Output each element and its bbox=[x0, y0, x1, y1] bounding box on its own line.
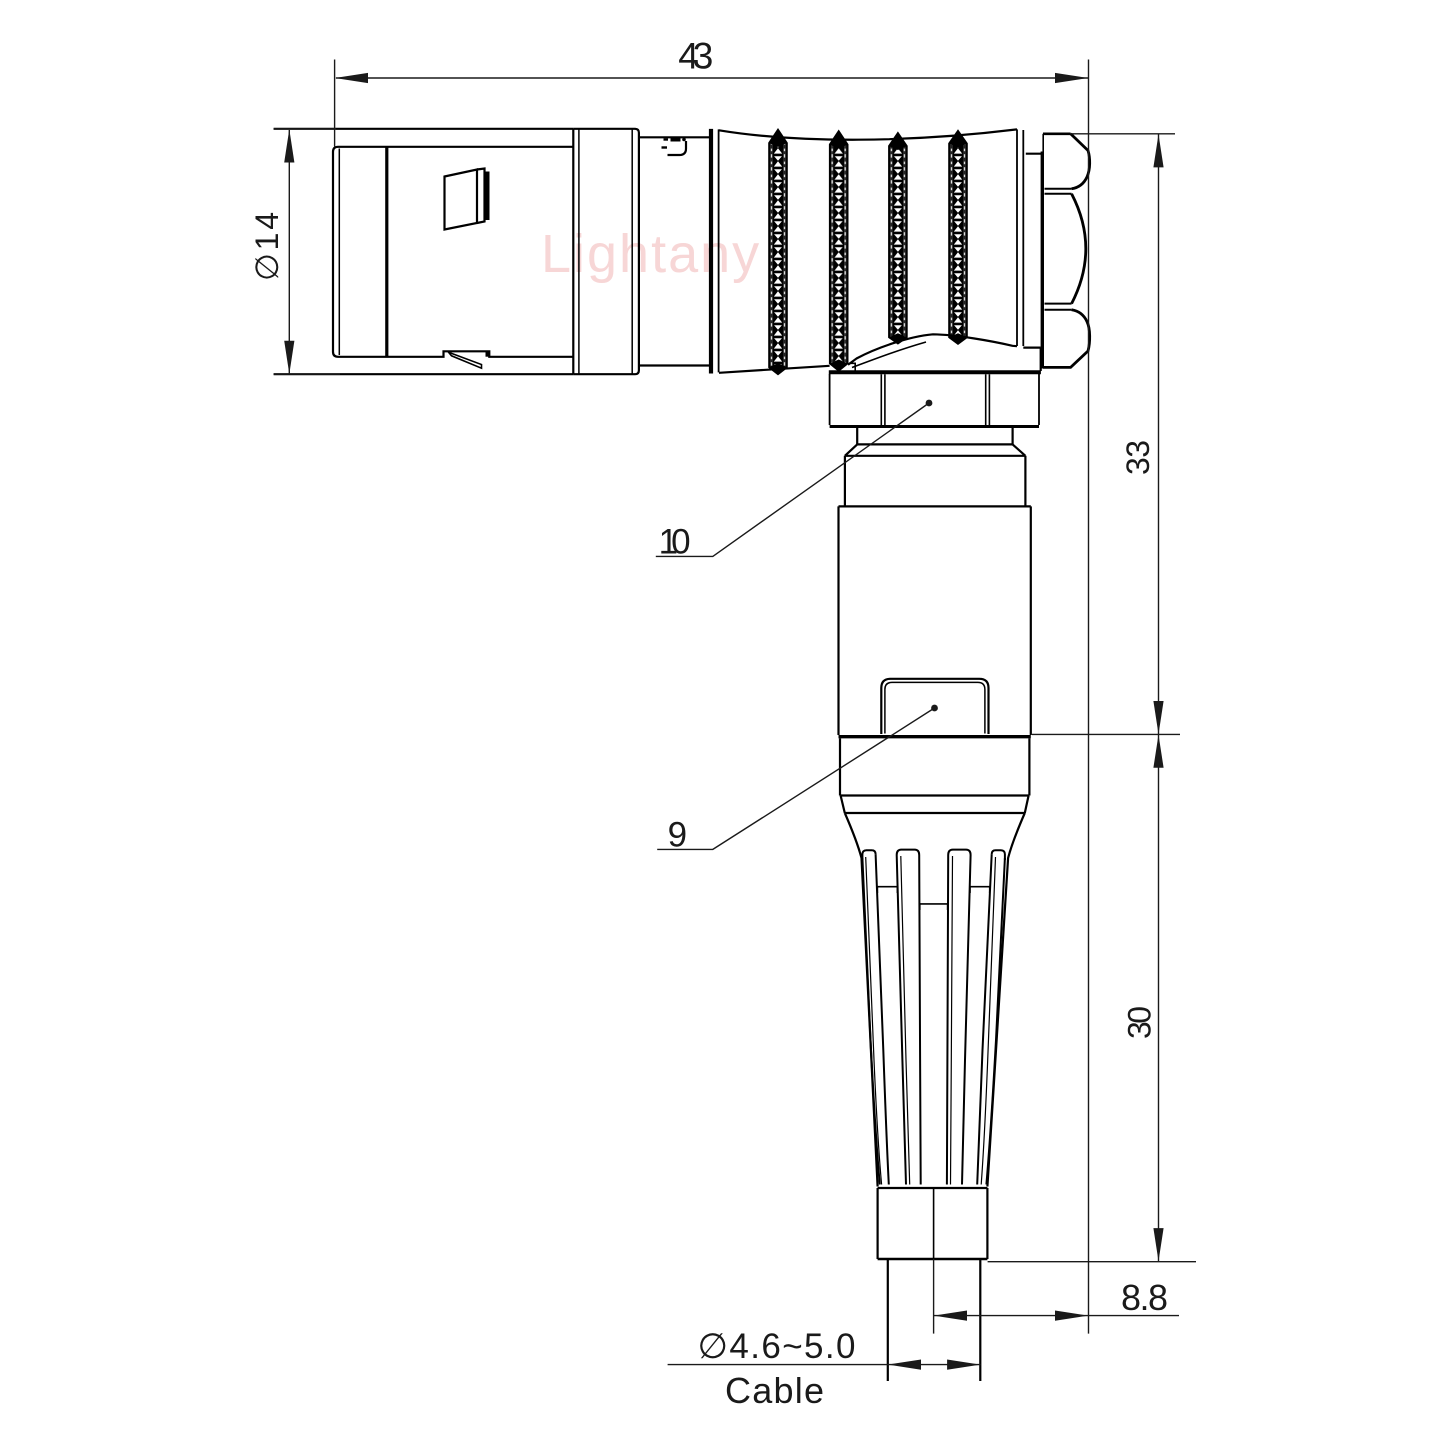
svg-text:8.8: 8.8 bbox=[1121, 1277, 1168, 1318]
svg-text:43: 43 bbox=[678, 36, 713, 77]
svg-text:33: 33 bbox=[1120, 440, 1156, 475]
svg-text:∅14: ∅14 bbox=[249, 212, 285, 281]
svg-text:30: 30 bbox=[1121, 1006, 1157, 1039]
svg-text:∅4.6~5.0: ∅4.6~5.0 bbox=[698, 1327, 856, 1366]
svg-text:10: 10 bbox=[659, 523, 691, 562]
svg-text:Cable: Cable bbox=[725, 1370, 824, 1411]
svg-text:9: 9 bbox=[668, 816, 687, 855]
